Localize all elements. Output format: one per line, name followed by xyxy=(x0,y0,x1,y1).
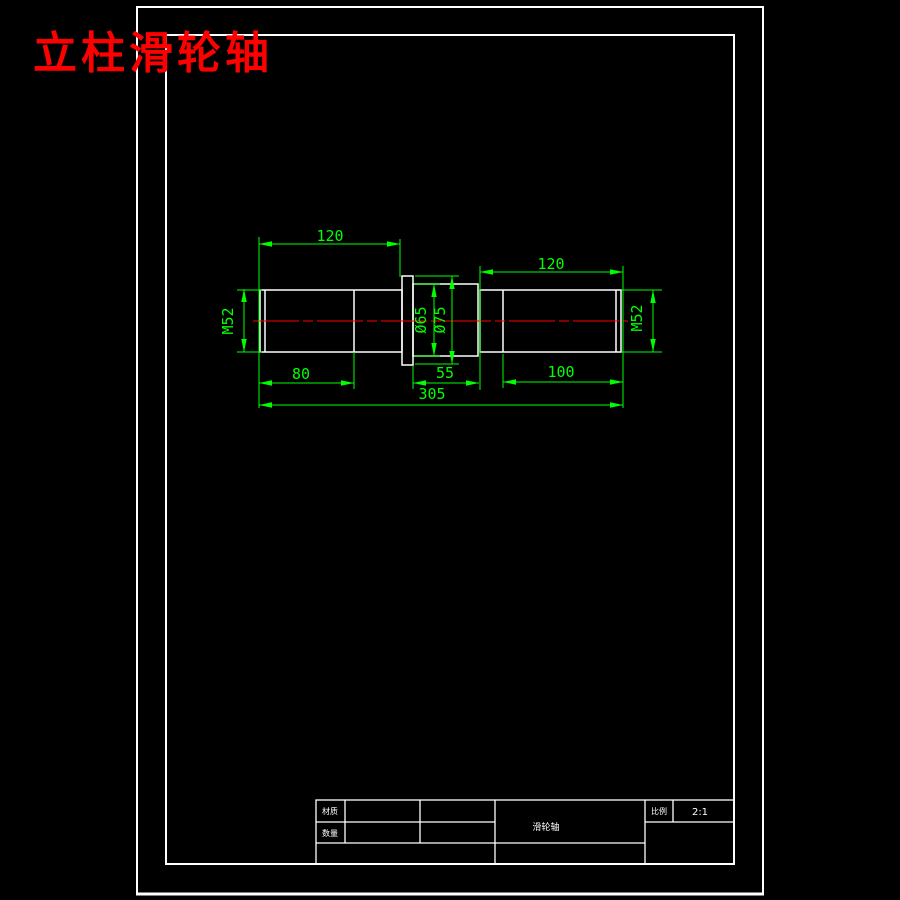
dim-label-m52-left: M52 xyxy=(219,307,237,334)
dimension-labels: 120 120 M52 M52 Ø65 Ø75 80 55 100 305 xyxy=(219,227,646,403)
dim-label-120-right: 120 xyxy=(537,255,564,273)
dim-label-55: 55 xyxy=(436,364,454,382)
quantity-label: 数量 xyxy=(322,828,338,838)
part-name: 滑轮轴 xyxy=(532,821,559,833)
page-title: 立柱滑轮轴 xyxy=(33,32,273,76)
dim-label-m52-right: M52 xyxy=(628,304,646,331)
drawing-svg: 120 120 M52 M52 Ø65 Ø75 80 55 100 305 材质… xyxy=(0,0,900,900)
dim-label-dia75: Ø75 xyxy=(431,306,449,333)
cad-canvas: 120 120 M52 M52 Ø65 Ø75 80 55 100 305 材质… xyxy=(0,0,900,900)
sheet-border xyxy=(136,7,764,894)
material-label: 材质 xyxy=(322,806,338,816)
dim-label-120-left: 120 xyxy=(316,227,343,245)
dim-label-305: 305 xyxy=(418,385,445,403)
dim-label-80: 80 xyxy=(292,365,310,383)
dim-label-100: 100 xyxy=(547,363,574,381)
title-block: 材质 数量 滑轮轴 比例 2:1 xyxy=(316,800,734,864)
dim-label-dia65: Ø65 xyxy=(412,306,430,333)
scale-label: 比例 xyxy=(651,806,667,816)
scale-value: 2:1 xyxy=(692,807,708,818)
